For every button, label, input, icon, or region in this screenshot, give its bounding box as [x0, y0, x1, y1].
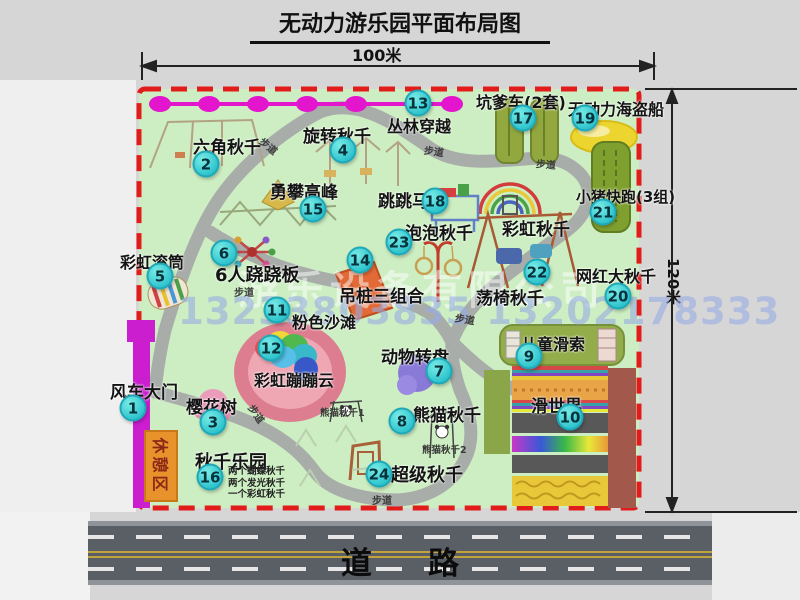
road-label: 道路 [88, 538, 712, 583]
attraction-badge-14: 14 [347, 247, 374, 274]
attraction-label-24: 超级秋千 [391, 461, 463, 487]
attraction-badge-12: 12 [258, 335, 285, 362]
panda-swing-2-label: 熊猫秋千2 [422, 442, 467, 456]
rest-area-label: 休憩区 [149, 437, 173, 494]
attraction-badge-19: 19 [572, 105, 599, 132]
attraction-label-12: 彩虹蹦蹦云 [254, 367, 334, 391]
attraction-badge-8: 8 [389, 408, 416, 435]
attraction-badge-24: 24 [366, 461, 393, 488]
attraction-badge-5: 5 [147, 263, 174, 290]
attraction-label-23: 泡泡秋千 [405, 219, 473, 244]
swing-park-note-1: 两个蝴蝶秋千 [228, 466, 285, 478]
swing-park-notes: 两个蝴蝶秋千 两个发光秋千 一个彩虹秋千 [228, 466, 285, 501]
attraction-badge-9: 9 [516, 343, 543, 370]
attraction-badge-21: 21 [590, 199, 617, 226]
footpath-label: 步道 [234, 284, 254, 299]
footpath-label: 步道 [454, 309, 476, 327]
attraction-label-11: 粉色沙滩 [292, 309, 356, 333]
attraction-badge-20: 20 [605, 283, 632, 310]
attraction-badge-22: 22 [524, 259, 551, 286]
swing-park-note-3: 一个彩虹秋千 [228, 489, 285, 501]
attraction-badge-16: 16 [197, 464, 224, 491]
attraction-badge-3: 3 [200, 409, 227, 436]
attraction-badge-4: 4 [330, 137, 357, 164]
attraction-label-22: 荡椅秋千 [476, 284, 544, 309]
park-plan-screenshot: { "title": "无动力游乐园平面布局图", "dimensions": … [0, 0, 800, 600]
attraction-badge-10: 10 [557, 404, 584, 431]
attraction-badge-15: 15 [300, 196, 327, 223]
attraction-badge-11: 11 [264, 297, 291, 324]
footpath-label: 步道 [535, 155, 556, 172]
attraction-label-14: 吊桩三组合 [339, 282, 424, 307]
attraction-badge-2: 2 [193, 151, 220, 178]
attraction-badge-17: 17 [510, 105, 537, 132]
attraction-label-13: 丛林穿越 [387, 113, 451, 137]
attraction-badge-23: 23 [386, 229, 413, 256]
swing-park-note-2: 两个发光秋千 [228, 478, 285, 490]
attraction-badge-18: 18 [422, 188, 449, 215]
attraction-badge-13: 13 [405, 90, 432, 117]
footpath-label: 步道 [372, 492, 392, 507]
rainbow-swing-label: 彩虹秋千 [502, 215, 570, 240]
attraction-badge-7: 7 [426, 358, 453, 385]
footpath-label: 步道 [423, 142, 445, 160]
rest-area: 休憩区 [144, 430, 178, 502]
attraction-badge-1: 1 [120, 395, 147, 422]
attraction-label-8: 熊猫秋千 [413, 401, 481, 426]
attraction-badge-6: 6 [211, 240, 238, 267]
panda-swing-1-label: 熊猫秋千1 [320, 405, 365, 419]
road: 道路 [88, 521, 712, 585]
